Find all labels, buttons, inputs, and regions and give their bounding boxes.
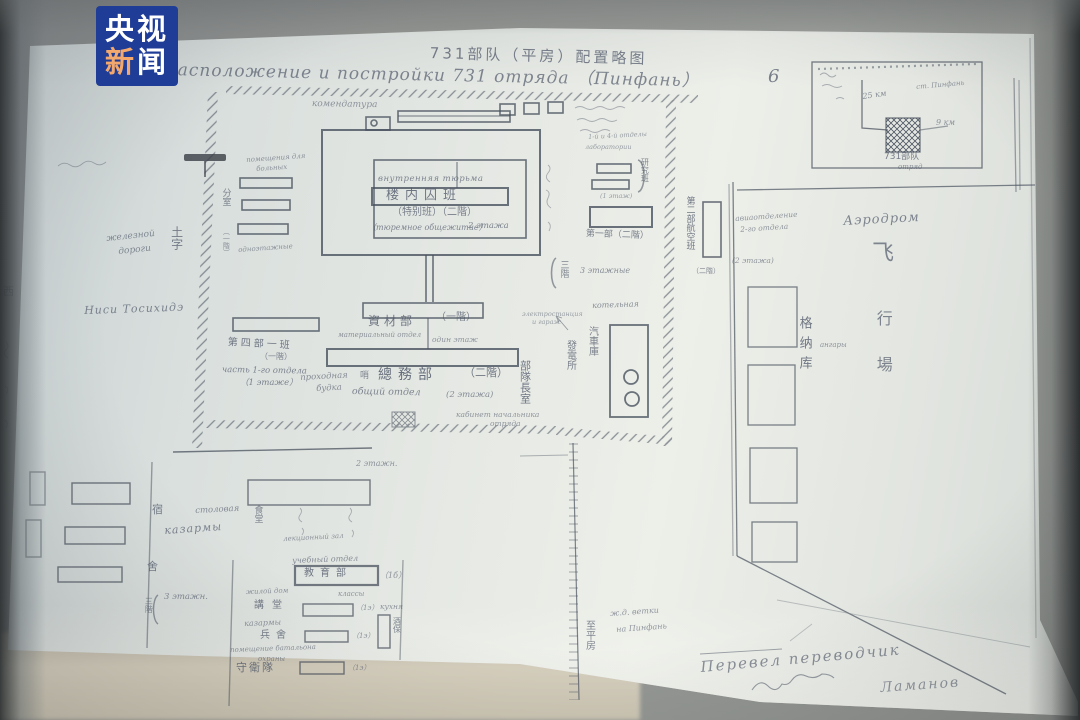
cctv-logo-line2: 新闻 (105, 46, 169, 79)
cctv-logo-xin-char: 新 (105, 45, 137, 79)
cctv-news-logo: 央视 新闻 (96, 6, 178, 86)
vignette (0, 0, 1080, 720)
photo-of-archival-map: 731部队（平房）配置略图 расположение и постройки 7… (0, 0, 1080, 720)
cctv-logo-line1: 央视 (105, 13, 169, 46)
cctv-logo-wen-char: 闻 (137, 45, 169, 79)
